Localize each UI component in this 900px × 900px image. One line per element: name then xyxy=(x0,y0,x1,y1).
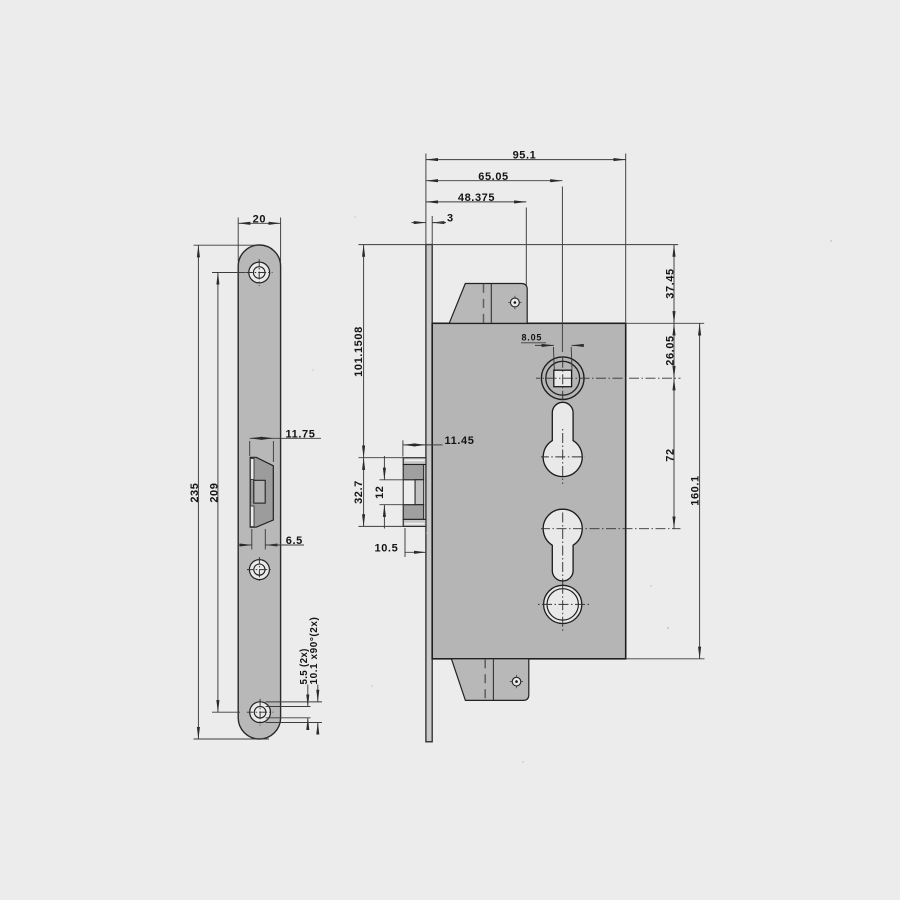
svg-text:65.05: 65.05 xyxy=(478,171,509,183)
svg-text:95.1: 95.1 xyxy=(513,150,537,162)
svg-text:209: 209 xyxy=(209,483,221,503)
svg-text:6.5: 6.5 xyxy=(286,535,303,547)
svg-text:11.75: 11.75 xyxy=(286,429,316,441)
svg-text:160.1: 160.1 xyxy=(690,475,702,506)
svg-text:37.45: 37.45 xyxy=(664,268,676,299)
svg-text:12: 12 xyxy=(374,485,386,498)
svg-text:235: 235 xyxy=(189,483,201,503)
svg-text:8.05: 8.05 xyxy=(522,333,543,343)
svg-text:72: 72 xyxy=(664,448,676,461)
svg-text:101.1508: 101.1508 xyxy=(353,326,365,377)
svg-text:48.375: 48.375 xyxy=(458,192,495,204)
svg-text:3: 3 xyxy=(447,213,454,225)
svg-text:26.05: 26.05 xyxy=(664,335,676,366)
svg-text:32.7: 32.7 xyxy=(353,480,365,504)
svg-text:11.45: 11.45 xyxy=(445,435,475,447)
svg-text:10.5: 10.5 xyxy=(375,543,399,555)
svg-text:20: 20 xyxy=(253,213,266,225)
svg-text:10.1 x90°(2x): 10.1 x90°(2x) xyxy=(309,617,320,685)
